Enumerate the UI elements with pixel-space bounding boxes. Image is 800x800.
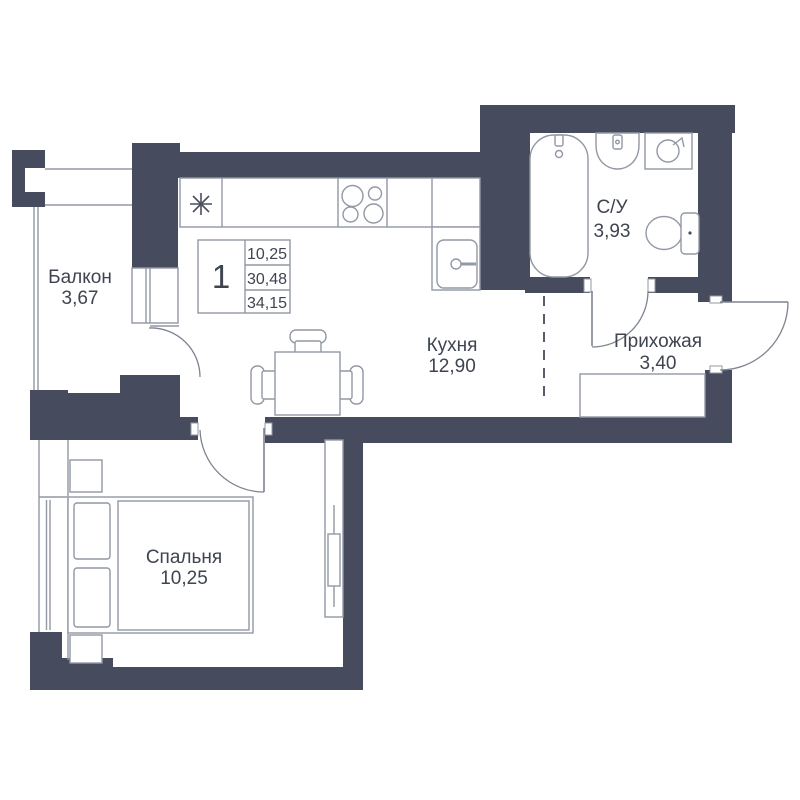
balcony-window bbox=[132, 268, 178, 323]
toilet-icon bbox=[646, 213, 699, 254]
wall-notch bbox=[25, 168, 45, 192]
pillow bbox=[74, 503, 110, 559]
room-area-bathroom: 3,93 bbox=[594, 221, 631, 242]
chair bbox=[337, 366, 363, 404]
room-area-kitchen: 12,90 bbox=[428, 356, 476, 377]
room-area-balcony: 3,67 bbox=[62, 288, 99, 309]
door-jamb bbox=[265, 423, 272, 435]
wall-segment bbox=[132, 152, 505, 178]
floor-plan-canvas: 1 10,25 30,48 34,15 Балкон 3,67 Кухня 12… bbox=[0, 0, 800, 800]
chair bbox=[290, 330, 326, 355]
room-label-hallway: Прихожая bbox=[614, 331, 702, 352]
room-label-kitchen: Кухня bbox=[427, 335, 478, 356]
wall-segment bbox=[132, 150, 178, 268]
room-label-bedroom: Спальня bbox=[146, 547, 222, 568]
info-value: 34,15 bbox=[247, 295, 287, 312]
door-jamb bbox=[584, 279, 591, 292]
pillow bbox=[74, 568, 110, 627]
info-rooms-count: 1 bbox=[212, 258, 230, 295]
wall-segment bbox=[120, 375, 180, 417]
bathtub-icon bbox=[530, 135, 588, 277]
wall-segment bbox=[698, 105, 732, 302]
door-swing bbox=[720, 302, 788, 370]
floor-plan-page: 1 10,25 30,48 34,15 Балкон 3,67 Кухня 12… bbox=[0, 0, 800, 800]
door-jamb bbox=[191, 423, 198, 435]
room-area-hallway: 3,40 bbox=[640, 353, 677, 374]
fridge-asterisk-icon bbox=[190, 193, 212, 215]
wall-segment bbox=[60, 417, 198, 440]
door-jamb bbox=[648, 279, 655, 292]
nightstand bbox=[70, 460, 102, 492]
wall-segment bbox=[525, 277, 590, 293]
dining-table bbox=[275, 352, 340, 415]
wardrobe bbox=[325, 440, 343, 617]
door-swing bbox=[200, 430, 264, 492]
dining-set bbox=[251, 330, 363, 415]
hall-closet bbox=[580, 374, 705, 417]
kitchen-counter bbox=[180, 178, 480, 227]
bathroom-sink-icon bbox=[596, 133, 639, 169]
washing-machine-icon bbox=[645, 133, 692, 169]
room-area-bedroom: 10,25 bbox=[160, 568, 208, 589]
wall-segment bbox=[30, 390, 68, 440]
kitchen-sink-icon bbox=[437, 240, 477, 288]
wall-segment bbox=[30, 632, 62, 690]
door-swing bbox=[149, 328, 200, 377]
info-value: 10,25 bbox=[247, 246, 287, 263]
info-value: 30,48 bbox=[247, 271, 287, 288]
wall-segment bbox=[265, 417, 732, 443]
nightstand bbox=[70, 635, 102, 663]
room-label-bathroom: С/У bbox=[596, 197, 628, 218]
wall-segment bbox=[343, 440, 363, 690]
wall-segment bbox=[113, 667, 363, 690]
room-label-balcony: Балкон bbox=[48, 267, 112, 288]
chair bbox=[251, 366, 277, 404]
wall-segment bbox=[648, 277, 707, 293]
info-table: 1 10,25 30,48 34,15 bbox=[198, 240, 290, 313]
